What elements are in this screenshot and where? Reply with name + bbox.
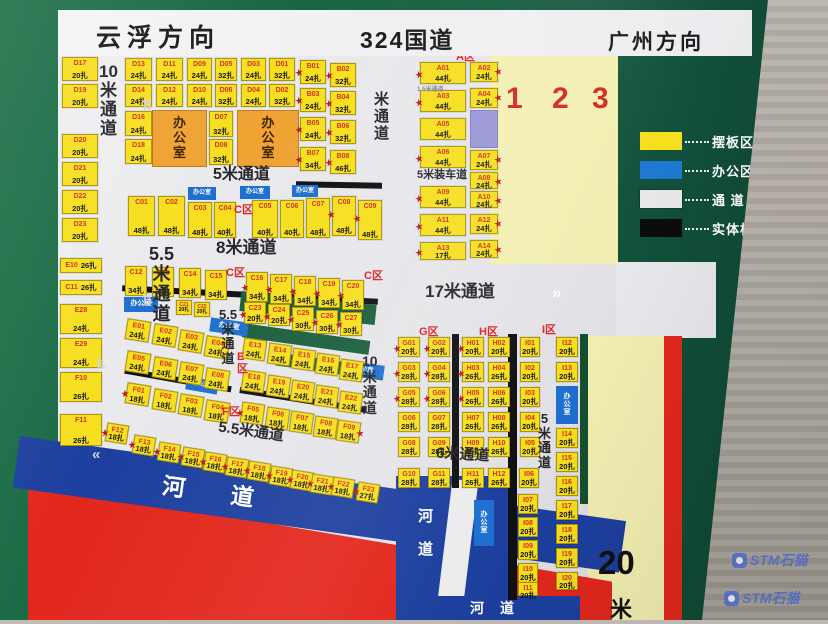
stall-I08: I0820扎 — [518, 517, 538, 537]
stall-I14: I1420扎 — [556, 428, 578, 448]
stall-G06: G0628扎 — [398, 412, 420, 432]
stall-qty: 20扎 — [522, 348, 538, 356]
stall-H03: H0326扎★ — [462, 362, 484, 382]
stall-qty: 20扎 — [197, 310, 208, 315]
watermark-text: STM石猫 — [750, 550, 808, 570]
corner-unit: 米 — [610, 592, 632, 624]
stall-C05: C0540扎 — [252, 200, 278, 238]
stall-id: C23 — [249, 305, 262, 312]
stall-qty: 24扎 — [270, 354, 287, 364]
star-icon: ★ — [240, 283, 251, 295]
zone-label: C区 — [226, 268, 245, 280]
stall-id: I12 — [562, 340, 572, 347]
stall-id: D05 — [220, 61, 233, 68]
stall-qty: 24扎 — [182, 373, 199, 383]
stall-qty: 26扎 — [491, 479, 507, 487]
stall-I02: I0220扎 — [520, 362, 540, 382]
stall-qty: 24扎 — [156, 335, 173, 345]
stall-H11: H1126扎 — [462, 468, 484, 488]
stall-qty: 20扎 — [522, 373, 538, 381]
star-icon: ★ — [238, 310, 249, 322]
office-block: 办 公 室 — [556, 386, 578, 424]
star-icon: ★ — [493, 93, 504, 105]
banner-g324: 324国道 — [360, 21, 454, 55]
stall-id: H12 — [493, 471, 506, 478]
stall-id: C03 — [194, 205, 207, 212]
stall-D13: D1324扎 — [125, 58, 152, 81]
stall-G05: G0528扎★ — [398, 387, 420, 407]
legend-dots — [685, 227, 709, 230]
stall-id: C02 — [165, 199, 178, 206]
stall-D01: D0132扎 — [269, 58, 295, 81]
star-icon: ★ — [264, 472, 274, 483]
stall-A02: A0224扎★ — [470, 62, 498, 82]
stall-id: A06 — [437, 149, 450, 156]
stall-qty: 32扎 — [213, 128, 229, 136]
star-icon: ★ — [414, 194, 425, 206]
stall-qty: 28扎 — [401, 479, 417, 487]
office-block: 办公室 — [292, 185, 318, 197]
stall-id: D07 — [215, 114, 228, 121]
stall-D22: D2220扎 — [62, 190, 98, 214]
stall-qty: 20扎 — [559, 373, 575, 381]
office-block: 办 公 室 — [152, 110, 207, 167]
star-icon: ★ — [294, 155, 305, 167]
stall-id: I08 — [523, 520, 533, 527]
section-number: 1 — [506, 82, 523, 116]
stall-id: B08 — [337, 153, 350, 160]
stall-qty: 26扎 — [81, 262, 97, 270]
legend-row: 办公区 — [640, 159, 770, 181]
cat-logo-icon — [724, 591, 739, 606]
stall-qty: 20扎 — [72, 233, 88, 241]
stall-id: A11 — [437, 217, 449, 224]
stall-id: D08 — [215, 142, 228, 149]
stall-C15: C1534扎 — [205, 270, 227, 300]
legend-swatch — [640, 132, 682, 150]
stall-qty: 40扎 — [257, 229, 273, 237]
stall-qty: 18扎 — [135, 445, 152, 455]
stall-qty: 27扎 — [359, 492, 376, 502]
stall-id: I04 — [525, 415, 535, 422]
stall-qty: 28扎 — [401, 398, 417, 406]
stall-qty: 20扎 — [72, 99, 88, 107]
stall-id: D06 — [220, 87, 233, 94]
star-icon: ★ — [392, 369, 403, 381]
stall-id: H06 — [493, 390, 506, 397]
stall-id: D12 — [163, 87, 176, 94]
stall-B05: B0524扎★ — [300, 117, 326, 141]
stall-D06: D0632扎 — [215, 84, 237, 107]
stall-id: D22 — [74, 193, 87, 200]
watermark: STM石猫 — [732, 550, 808, 570]
stall-qty: 48扎 — [310, 229, 326, 237]
star-icon: ★ — [493, 67, 504, 79]
stall-id: I05 — [525, 440, 535, 447]
stall-qty: 24扎 — [208, 379, 225, 389]
stall-qty: 28扎 — [431, 479, 447, 487]
stall-D07: D0732扎 — [209, 111, 233, 137]
star-icon: ★ — [152, 448, 162, 459]
stall-H02: H0220扎 — [488, 337, 510, 357]
stall-qty: 20扎 — [559, 487, 575, 495]
stall-A04: A0424扎★ — [470, 88, 498, 108]
stall-qty: 32扎 — [274, 72, 290, 80]
stall-qty: 24扎 — [162, 72, 178, 80]
stall-qty: 20扎 — [522, 448, 538, 456]
star-icon: ★ — [392, 394, 403, 406]
stall-E03: E0324扎 — [178, 329, 205, 353]
stall-qty: 28扎 — [401, 423, 417, 431]
stall-qty: 24扎 — [192, 98, 208, 106]
stall-C02: C0248扎 — [158, 196, 185, 236]
stall-qty: 44扎 — [435, 227, 451, 235]
stall-id: B01 — [307, 63, 320, 70]
stall-id: C05 — [259, 203, 272, 210]
stall-qty: 48扎 — [336, 227, 352, 235]
stall-qty: 28扎 — [401, 448, 417, 456]
stall-id: D01 — [276, 61, 289, 68]
stall-qty: 20扎 — [72, 177, 88, 185]
stall-qty: 28扎 — [431, 373, 447, 381]
stall-H07: H0726扎 — [462, 412, 484, 432]
stall-qty: 24扎 — [129, 330, 146, 340]
stall-id: D03 — [247, 61, 260, 68]
stall-qty: 24扎 — [293, 391, 310, 401]
stall-D05: D0532扎 — [215, 58, 237, 81]
stall-qty: 20扎 — [520, 574, 536, 582]
stall-I11: I1120扎 — [518, 582, 538, 596]
star-icon: ★ — [312, 289, 323, 301]
stall-id: A09 — [437, 189, 450, 196]
stall-id: G06 — [432, 390, 445, 397]
arrow-icon: » — [552, 284, 561, 301]
stall-id: C07 — [312, 201, 325, 208]
star-icon: ★ — [326, 483, 336, 494]
star-icon: ★ — [285, 476, 295, 487]
stall-qty: 34扎 — [182, 289, 198, 297]
zone-label: I区 — [542, 325, 556, 337]
legend-label: 实体柱 — [712, 219, 754, 238]
arrow-icon: ⇅ — [95, 358, 106, 371]
stall-qty: 20扎 — [271, 317, 287, 325]
stall-C11: C1126扎 — [60, 280, 102, 295]
stall-id: D14 — [132, 87, 145, 94]
legend-row: 摆板区 — [640, 130, 770, 152]
map-board: 河道 河 道 河道 办 公 室办 公 室办公室办公室办公室办公室办公室办公室办公… — [0, 0, 828, 620]
stall-qty: 28扎 — [401, 373, 417, 381]
stall-qty: 18扎 — [182, 405, 199, 415]
stall-qty: 24扎 — [476, 250, 492, 258]
stall-id: B03 — [307, 91, 320, 98]
stall-id: I03 — [525, 390, 535, 397]
office-block: 办 公 室 — [237, 110, 299, 167]
stall-id: D16 — [132, 114, 145, 121]
stall-qty: 24扎 — [305, 75, 321, 83]
legend-row: 通 道 — [640, 188, 770, 210]
stall-B06: B0632扎★ — [330, 120, 356, 144]
stall-A12: A1224扎★ — [470, 214, 498, 234]
stall-id: B06 — [337, 123, 350, 130]
stall-C03: C0348扎 — [188, 202, 212, 238]
star-icon: ★ — [336, 291, 347, 303]
stall-id: A07 — [478, 153, 491, 160]
aisle-label: 10 米 通 道 — [362, 354, 378, 417]
stall-qty: 20扎 — [559, 559, 575, 567]
stall-qty: 32扎 — [335, 135, 351, 143]
stall-qty: 24扎 — [476, 201, 492, 209]
stall-qty: 20扎 — [522, 398, 538, 406]
stall-H06: H0626扎 — [488, 387, 510, 407]
stall-F01: F0118扎★ — [125, 382, 152, 406]
stall-C22: C2220扎 — [194, 302, 210, 317]
stall-G10: G1028扎 — [398, 468, 420, 488]
stall-qty: 48扎 — [192, 229, 208, 237]
stall-C21: C2120扎 — [176, 300, 192, 315]
stall-A13: A1317扎★ — [420, 242, 466, 260]
star-icon: ★ — [355, 429, 365, 440]
zone-label: E 区 — [237, 352, 248, 375]
stall-H08: H0826扎 — [488, 412, 510, 432]
legend-label: 摆板区 — [712, 132, 754, 151]
stall-I07: I0720扎 — [518, 494, 538, 514]
stall-qty: 20扎 — [559, 348, 575, 356]
stall-E14: E1424扎 — [267, 343, 293, 367]
stall-id: C27 — [345, 315, 358, 322]
stall-id: A03 — [437, 93, 450, 100]
stall-qty: 26扎 — [465, 479, 481, 487]
stall-D03: D0324扎 — [241, 58, 266, 81]
stall-id: C26 — [321, 313, 334, 320]
stall-D18: D1824扎 — [125, 139, 152, 164]
stall-qty: 20扎 — [521, 479, 537, 487]
stall-id: B05 — [307, 120, 320, 127]
stall-id: G03 — [402, 365, 415, 372]
stall-id: C11 — [65, 284, 77, 291]
stall-E17: E1724扎 — [339, 359, 365, 383]
stall-qty: 24扎 — [317, 396, 334, 406]
star-icon: ★ — [324, 99, 335, 111]
stall-id: G07 — [432, 415, 445, 422]
stall-id: C01 — [135, 199, 148, 206]
stall-E20: E2024扎 — [290, 380, 316, 404]
aisle-label: 6米通道 — [436, 446, 490, 466]
stall-A06: A0644扎★ — [420, 146, 466, 168]
stall-qty: 26扎 — [81, 284, 97, 292]
stall-G06: G0628扎★ — [428, 387, 450, 407]
legend: 摆板区办公区通 道实体柱 — [640, 130, 770, 246]
star-icon: ★ — [392, 344, 403, 356]
stall-I15: I1520扎 — [556, 452, 578, 472]
stall-id: D02 — [276, 87, 289, 94]
stall-I01: I0120扎 — [520, 337, 540, 357]
stall-id: C12 — [130, 269, 143, 276]
stall-qty: 20扎 — [431, 348, 447, 356]
star-icon: ★ — [422, 394, 433, 406]
stall-id: G06 — [402, 415, 415, 422]
arrow-icon: ⇅ — [141, 98, 154, 113]
stall-I09: I0920扎 — [518, 540, 538, 560]
stall-E06: E0624扎 — [152, 356, 179, 380]
stall-qty: 20扎 — [72, 205, 88, 213]
stall-D12: D1224扎 — [156, 84, 183, 107]
stall-id: H03 — [467, 365, 480, 372]
stall-E10: E1026扎 — [60, 258, 102, 273]
stall-qty: 24扎 — [129, 362, 146, 372]
section-number: 3 — [592, 82, 609, 116]
watermark: STM石猫 — [724, 588, 800, 608]
star-icon: ★ — [493, 196, 504, 208]
stall-qty: 26扎 — [73, 437, 89, 445]
stall-E07: E0724扎 — [178, 361, 205, 385]
stall-id: C15 — [210, 273, 223, 280]
banner-yunfu: 云浮方向 — [96, 18, 220, 54]
stall-qty: 26扎 — [465, 373, 481, 381]
star-icon: ★ — [456, 369, 467, 381]
stall-id: D10 — [193, 87, 206, 94]
stall-D10: D1024扎 — [187, 84, 212, 107]
star-icon: ★ — [305, 480, 315, 491]
stall-qty: 18扎 — [334, 487, 351, 497]
stall-qty: 44扎 — [435, 103, 451, 111]
stall-F02: F0218扎 — [152, 388, 179, 412]
stall-qty: 18扎 — [160, 452, 177, 462]
stall-id: I19 — [562, 551, 572, 558]
stall-id: A12 — [478, 217, 491, 224]
stall-I17: I1720扎 — [556, 500, 578, 520]
stall-id: C16 — [251, 275, 264, 282]
stall-A05: A0544扎 — [420, 118, 466, 140]
stall-qty: 32扎 — [335, 78, 351, 86]
stall-E08: E0824扎 — [204, 367, 231, 391]
stall-I10: I1020扎 — [518, 563, 538, 583]
stall-I16: I1620扎 — [556, 476, 578, 496]
stall-E02: E0224扎 — [152, 323, 179, 347]
stall-A10: A1024扎★ — [470, 191, 498, 208]
stall-qty: 44扎 — [435, 131, 451, 139]
stall-H10: H1026扎 — [488, 437, 510, 457]
stall-F07: F0718扎 — [289, 411, 315, 435]
stall-H05: H0526扎★ — [462, 387, 484, 407]
stall-id: H10 — [493, 440, 506, 447]
stall-id: I09 — [523, 543, 533, 550]
stall-id: C24 — [273, 307, 286, 314]
stall-D11: D1124扎 — [156, 58, 183, 81]
star-icon: ★ — [456, 394, 467, 406]
stall-qty: 48扎 — [362, 231, 378, 239]
stall-B08: B0846扎★ — [330, 150, 356, 174]
stall-qty: 18扎 — [292, 422, 309, 432]
stall-qty: 24扎 — [305, 132, 321, 140]
stall-A08: A0824扎★ — [470, 172, 498, 189]
stall-qty: 24扎 — [182, 341, 199, 351]
stall-qty: 24扎 — [131, 127, 147, 135]
stall-C27: C2730扎★ — [340, 312, 362, 336]
stall-id: D17 — [74, 60, 87, 67]
stall-E01: E0124扎 — [125, 318, 152, 342]
stall-qty: 32扎 — [335, 106, 351, 114]
star-icon: ★ — [100, 429, 110, 440]
stall-id: C20 — [347, 283, 360, 290]
direction-banner: 云浮方向 324国道 广州方向 — [58, 10, 752, 56]
stall-id: C06 — [286, 203, 299, 210]
stall-qty: 20扎 — [179, 308, 190, 313]
stall-qty: 32扎 — [218, 98, 234, 106]
stall-I18: I1820扎 — [556, 524, 578, 544]
stall-qty: 18扎 — [316, 427, 333, 437]
stall-B01: B0124扎★ — [300, 60, 326, 84]
stall-id: C08 — [338, 199, 351, 206]
stall-qty: 18扎 — [129, 394, 146, 404]
stall-qty: 24扎 — [476, 182, 492, 190]
stall-G11: G1128扎 — [428, 468, 450, 488]
stall-C04: C0440扎 — [214, 202, 236, 238]
legend-row: 实体柱 — [640, 217, 770, 239]
stall-qty: 20扎 — [559, 511, 575, 519]
stall-qty: 32扎 — [274, 98, 290, 106]
stall-id: I14 — [562, 431, 572, 438]
stall-qty: 20扎 — [520, 592, 536, 600]
star-icon: ★ — [264, 285, 275, 297]
stall-qty: 34扎 — [249, 293, 265, 301]
zone-label: G区 — [419, 327, 439, 339]
stall-qty: 30扎 — [343, 327, 359, 335]
stall-id: H04 — [493, 365, 506, 372]
stall-id: G05 — [402, 390, 415, 397]
aisle-label: 17米通道 — [425, 282, 495, 301]
stall-qty: 20扎 — [72, 72, 88, 80]
stall-B07: B0734扎★ — [300, 147, 326, 171]
star-icon: ★ — [262, 312, 273, 324]
stall-F09: F0918扎★ — [336, 420, 362, 444]
stall-qty: 24扎 — [162, 98, 178, 106]
stall-F12: F1218扎★ — [105, 422, 130, 444]
stall-id: I02 — [525, 365, 535, 372]
stall-qty: 18扎 — [108, 433, 125, 443]
aisle-label: 5 米 通 道 — [538, 412, 551, 470]
legend-swatch — [640, 190, 682, 208]
corner-number: 20 — [598, 544, 635, 582]
stall-id: I17 — [562, 503, 572, 510]
stall-id: C14 — [184, 271, 197, 278]
stall-qty: 48扎 — [134, 227, 150, 235]
legend-swatch — [640, 219, 682, 237]
arrow-icon: « — [92, 447, 100, 462]
stall-I03: I0320扎 — [520, 387, 540, 407]
aisle-label: 10 米 通 道 — [99, 62, 118, 138]
stall-qty: 48扎 — [164, 227, 180, 235]
stall-qty: 20扎 — [247, 315, 263, 323]
star-icon: ★ — [493, 177, 504, 189]
stall-id: D09 — [193, 61, 206, 68]
stall-qty: 28扎 — [431, 423, 447, 431]
stall-qty: 26扎 — [465, 423, 481, 431]
stall-I06: I0620扎 — [519, 468, 539, 488]
stall-F03: F0318扎 — [178, 393, 205, 417]
stall-qty: 24扎 — [476, 225, 492, 233]
stall-id: B04 — [337, 94, 350, 101]
star-icon: ★ — [414, 98, 425, 110]
stall-G01: G0120扎★ — [398, 337, 420, 357]
aisle-label: 5米通道 — [213, 166, 270, 184]
stall-E05: E0524扎 — [125, 350, 152, 374]
stall-I19: I1920扎 — [556, 548, 578, 568]
stall-id: G10 — [402, 471, 415, 478]
legend-dots — [685, 198, 709, 201]
stall-qty: 28扎 — [431, 398, 447, 406]
stall-id: H01 — [467, 340, 480, 347]
stall-id: G02 — [432, 340, 445, 347]
